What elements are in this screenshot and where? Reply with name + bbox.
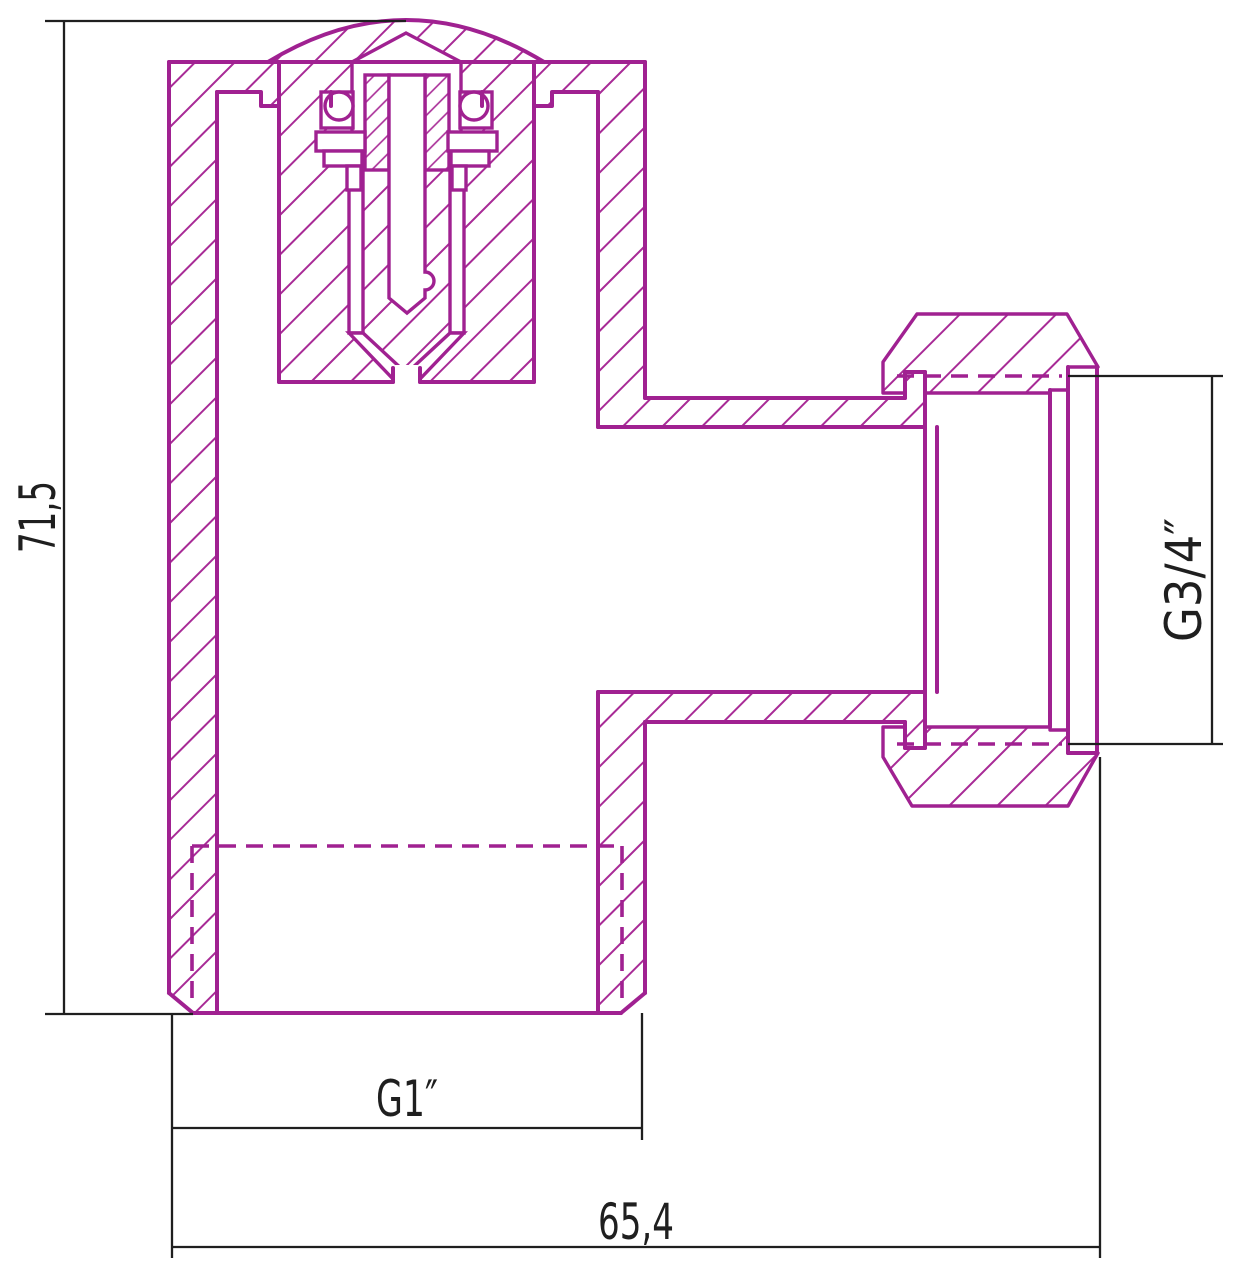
stem-guide-right	[425, 75, 449, 170]
valve-cross-section-svg: 71,5 G3/4″ G1″ 65,4	[0, 0, 1243, 1280]
technical-drawing-page: 71,5 G3/4″ G1″ 65,4	[0, 0, 1243, 1280]
body-right-wall-upper	[598, 92, 645, 427]
crimp-tab-right	[534, 92, 552, 106]
gland-bar-left-2	[324, 151, 362, 166]
gland-bar-right-1	[448, 132, 497, 151]
dim-label-height: 71,5	[9, 481, 67, 553]
dim-label-bottom-thread: G1″	[376, 1070, 438, 1128]
dim-label-outlet-thread: G3/4″	[1155, 518, 1213, 642]
stem-guide-left	[365, 75, 389, 170]
dim-label-width: 65,4	[598, 1193, 674, 1251]
gland-bar-right-2	[451, 151, 489, 166]
crimp-tab-left	[261, 92, 279, 106]
gland-tab-right	[452, 166, 466, 190]
gland-bar-left-1	[316, 132, 365, 151]
cap-outlet-notch	[391, 365, 422, 383]
gland-tab-left	[347, 166, 361, 190]
